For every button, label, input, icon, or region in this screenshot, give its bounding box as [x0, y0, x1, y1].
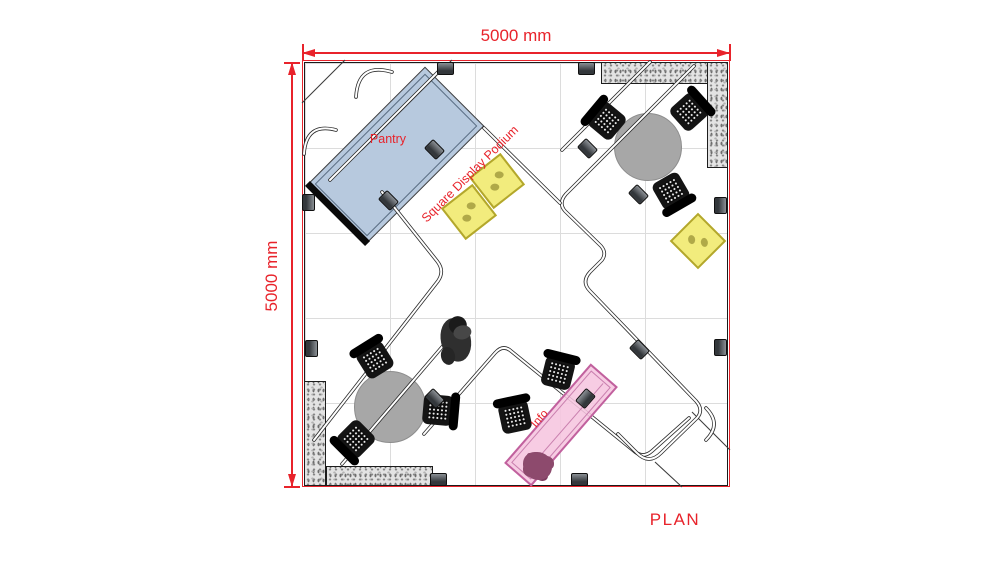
pantry-label: Pantry	[348, 132, 428, 146]
wall-left	[304, 381, 326, 486]
floor-plan-drawing: Pantry Square Display Podium Info 5000 m…	[0, 0, 999, 562]
dimension-line-left	[291, 62, 293, 487]
dimension-arrow-right	[717, 49, 730, 57]
dimension-label-left: 5000 mm	[262, 201, 282, 351]
spotlight-box	[578, 62, 595, 75]
dimension-line-top	[302, 52, 730, 54]
plant-on-counter	[523, 452, 552, 480]
spotlight-box	[305, 340, 318, 357]
plan-title: PLAN	[630, 510, 720, 530]
spotlight-box	[714, 197, 727, 214]
wall-top	[601, 62, 712, 84]
spotlight-box	[571, 473, 588, 486]
dimension-arrow-up	[288, 62, 296, 75]
wall-bottom	[326, 466, 433, 486]
spotlight-box	[430, 473, 447, 486]
dimension-arrow-left	[302, 49, 315, 57]
spotlight-box	[437, 62, 454, 75]
dimension-label-top: 5000 mm	[302, 26, 730, 46]
spotlight-box	[302, 194, 315, 211]
dimension-arrow-down	[288, 474, 296, 487]
spotlight-box	[714, 339, 727, 356]
